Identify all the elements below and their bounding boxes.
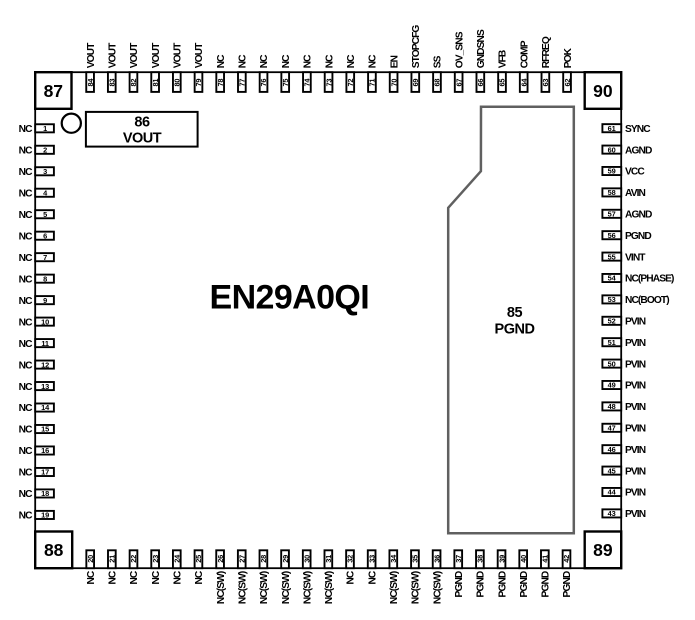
svg-text:19: 19: [41, 511, 49, 520]
svg-text:VOUT: VOUT: [86, 42, 97, 68]
svg-text:36: 36: [432, 555, 441, 563]
svg-text:9: 9: [43, 296, 47, 305]
svg-text:64: 64: [519, 78, 528, 87]
svg-text:80: 80: [173, 79, 182, 87]
svg-text:15: 15: [41, 425, 49, 434]
svg-text:6: 6: [43, 231, 47, 240]
svg-text:44: 44: [608, 488, 617, 497]
svg-text:43: 43: [608, 509, 616, 518]
svg-text:NC: NC: [19, 317, 33, 328]
svg-text:34: 34: [389, 554, 398, 563]
svg-text:GNDSNS: GNDSNS: [476, 29, 487, 68]
svg-text:AGND: AGND: [625, 145, 652, 156]
svg-text:16: 16: [41, 446, 49, 455]
svg-text:NC: NC: [346, 54, 357, 68]
svg-text:NC: NC: [19, 382, 33, 393]
svg-text:NC: NC: [19, 489, 33, 500]
svg-text:18: 18: [41, 489, 49, 498]
svg-text:29: 29: [281, 555, 290, 563]
svg-text:OV_SNS: OV_SNS: [454, 31, 465, 68]
svg-text:NC: NC: [259, 54, 270, 68]
svg-text:NC: NC: [19, 511, 33, 522]
svg-text:51: 51: [608, 338, 616, 347]
svg-text:63: 63: [541, 79, 550, 87]
svg-text:EN29A0QI: EN29A0QI: [210, 279, 370, 317]
svg-text:VOUT: VOUT: [151, 42, 162, 68]
svg-text:56: 56: [608, 231, 616, 240]
svg-text:73: 73: [324, 79, 333, 87]
svg-text:RFREQ: RFREQ: [541, 36, 552, 68]
svg-text:AGND: AGND: [625, 210, 652, 221]
svg-text:10: 10: [41, 317, 49, 326]
svg-text:28: 28: [259, 555, 268, 563]
svg-text:26: 26: [216, 555, 225, 563]
svg-text:PVIN: PVIN: [625, 317, 646, 328]
svg-text:79: 79: [194, 79, 203, 87]
svg-text:49: 49: [608, 381, 616, 390]
svg-text:AVIN: AVIN: [625, 188, 646, 199]
svg-text:46: 46: [608, 445, 616, 454]
svg-text:39: 39: [497, 555, 506, 563]
svg-text:81: 81: [151, 79, 160, 87]
svg-text:13: 13: [41, 382, 49, 391]
svg-text:45: 45: [608, 466, 616, 475]
svg-text:NC: NC: [86, 570, 97, 584]
svg-text:PGND: PGND: [454, 571, 465, 597]
svg-text:33: 33: [367, 555, 376, 563]
svg-text:NC: NC: [19, 425, 33, 436]
svg-text:32: 32: [346, 555, 355, 563]
svg-text:NC: NC: [346, 570, 357, 584]
svg-text:52: 52: [608, 317, 616, 326]
svg-text:NC: NC: [19, 231, 33, 242]
svg-text:22: 22: [129, 555, 138, 563]
svg-text:NC: NC: [19, 296, 33, 307]
svg-text:VOUT: VOUT: [107, 42, 118, 68]
svg-text:NC: NC: [19, 145, 33, 156]
svg-text:7: 7: [43, 253, 47, 262]
svg-text:37: 37: [454, 555, 463, 563]
svg-text:NC: NC: [324, 54, 335, 68]
svg-text:PGND: PGND: [495, 322, 535, 338]
svg-text:25: 25: [194, 555, 203, 563]
svg-text:74: 74: [303, 78, 312, 87]
svg-text:3: 3: [43, 167, 47, 176]
svg-text:23: 23: [151, 555, 160, 563]
svg-text:NC: NC: [19, 360, 33, 371]
svg-text:VOUT: VOUT: [173, 42, 184, 68]
svg-text:82: 82: [129, 79, 138, 87]
svg-text:24: 24: [173, 554, 182, 563]
svg-text:62: 62: [563, 79, 572, 87]
svg-text:35: 35: [411, 555, 420, 563]
svg-text:NC: NC: [238, 54, 249, 68]
svg-text:NC: NC: [19, 210, 33, 221]
svg-text:11: 11: [41, 339, 49, 348]
svg-text:NC: NC: [216, 54, 227, 68]
svg-text:12: 12: [41, 360, 49, 369]
svg-text:41: 41: [541, 555, 550, 563]
svg-text:NC: NC: [19, 446, 33, 457]
svg-text:NC: NC: [19, 253, 33, 264]
svg-text:NC: NC: [303, 54, 314, 68]
svg-text:EN: EN: [389, 55, 400, 68]
svg-text:NC(SW): NC(SW): [389, 571, 400, 604]
svg-text:STOPCFG: STOPCFG: [411, 25, 422, 69]
svg-text:PGND: PGND: [476, 571, 487, 597]
svg-text:76: 76: [259, 79, 268, 87]
svg-text:PVIN: PVIN: [625, 381, 646, 392]
svg-text:POK: POK: [563, 47, 574, 68]
svg-text:40: 40: [519, 555, 528, 563]
svg-text:86: 86: [134, 114, 150, 130]
svg-text:90: 90: [593, 81, 613, 101]
svg-text:PGND: PGND: [519, 571, 530, 597]
svg-text:PGND: PGND: [625, 231, 651, 242]
svg-text:NC(SW): NC(SW): [324, 571, 335, 604]
svg-text:57: 57: [608, 210, 616, 219]
svg-text:NC(SW): NC(SW): [237, 571, 248, 604]
svg-text:14: 14: [41, 403, 50, 412]
svg-text:88: 88: [44, 540, 64, 560]
svg-text:NC: NC: [194, 570, 205, 584]
svg-text:48: 48: [608, 402, 616, 411]
svg-text:53: 53: [608, 295, 616, 304]
svg-text:NC: NC: [19, 188, 33, 199]
svg-text:NC: NC: [281, 54, 292, 68]
svg-text:VOUT: VOUT: [123, 130, 162, 146]
svg-text:NC: NC: [19, 124, 33, 135]
svg-text:NC: NC: [19, 403, 33, 414]
svg-text:83: 83: [107, 79, 116, 87]
svg-text:NC(BOOT): NC(BOOT): [625, 295, 669, 306]
svg-text:NC: NC: [367, 570, 378, 584]
svg-text:68: 68: [433, 79, 442, 87]
svg-text:NC(PHASE): NC(PHASE): [625, 274, 674, 285]
svg-text:54: 54: [608, 274, 617, 283]
svg-text:61: 61: [608, 124, 616, 133]
svg-text:NC(SW): NC(SW): [259, 571, 270, 604]
svg-text:NC: NC: [173, 570, 184, 584]
svg-text:PVIN: PVIN: [625, 466, 646, 477]
svg-text:NC(SW): NC(SW): [216, 571, 227, 604]
svg-text:17: 17: [41, 468, 49, 477]
svg-text:1: 1: [43, 124, 47, 133]
svg-text:30: 30: [302, 555, 311, 563]
svg-text:PVIN: PVIN: [625, 338, 646, 349]
svg-text:27: 27: [237, 555, 246, 563]
svg-text:NC: NC: [19, 468, 33, 479]
svg-text:NC(SW): NC(SW): [281, 571, 292, 604]
svg-text:NC: NC: [368, 54, 379, 68]
svg-text:SS: SS: [433, 55, 444, 68]
svg-text:2: 2: [43, 145, 47, 154]
svg-text:PVIN: PVIN: [625, 509, 646, 520]
svg-text:50: 50: [608, 359, 616, 368]
svg-text:85: 85: [507, 305, 523, 321]
svg-text:SYNC: SYNC: [625, 124, 651, 135]
svg-text:75: 75: [281, 79, 290, 87]
svg-text:8: 8: [43, 274, 47, 283]
svg-text:65: 65: [498, 79, 507, 87]
svg-text:PVIN: PVIN: [625, 359, 646, 370]
svg-text:PGND: PGND: [562, 571, 573, 597]
svg-text:20: 20: [86, 555, 95, 563]
svg-text:NC: NC: [19, 339, 33, 350]
svg-text:PVIN: PVIN: [625, 488, 646, 499]
svg-text:PGND: PGND: [497, 571, 508, 597]
svg-text:31: 31: [324, 555, 333, 563]
svg-text:21: 21: [108, 555, 117, 563]
svg-text:VOUT: VOUT: [194, 42, 205, 68]
svg-text:69: 69: [411, 79, 420, 87]
svg-text:PGND: PGND: [541, 571, 552, 597]
svg-text:COMP: COMP: [519, 40, 530, 68]
svg-text:71: 71: [368, 79, 377, 87]
svg-text:42: 42: [562, 555, 571, 563]
svg-text:NC: NC: [151, 570, 162, 584]
svg-text:PVIN: PVIN: [625, 445, 646, 456]
svg-text:VOUT: VOUT: [129, 42, 140, 68]
svg-text:VFB: VFB: [498, 50, 509, 68]
svg-text:55: 55: [608, 252, 616, 261]
svg-text:84: 84: [86, 78, 95, 87]
svg-text:VCC: VCC: [625, 167, 645, 178]
svg-text:72: 72: [346, 79, 355, 87]
svg-text:NC: NC: [19, 167, 33, 178]
svg-text:70: 70: [389, 79, 398, 87]
svg-text:VINT: VINT: [625, 252, 646, 263]
svg-text:87: 87: [44, 81, 63, 101]
svg-text:77: 77: [238, 79, 247, 87]
svg-text:38: 38: [476, 555, 485, 563]
svg-text:NC: NC: [19, 274, 33, 285]
svg-text:NC: NC: [129, 570, 140, 584]
svg-text:78: 78: [216, 79, 225, 87]
svg-text:NC(SW): NC(SW): [411, 571, 422, 604]
svg-text:47: 47: [608, 424, 616, 433]
svg-text:5: 5: [43, 210, 47, 219]
svg-text:PVIN: PVIN: [625, 424, 646, 435]
svg-text:PVIN: PVIN: [625, 402, 646, 413]
svg-text:NC(SW): NC(SW): [302, 571, 313, 604]
svg-text:67: 67: [454, 79, 463, 87]
svg-text:NC(SW): NC(SW): [432, 571, 443, 604]
svg-text:89: 89: [593, 540, 613, 560]
svg-text:66: 66: [476, 79, 485, 87]
svg-text:NC: NC: [108, 570, 119, 584]
svg-text:58: 58: [608, 188, 616, 197]
svg-text:60: 60: [608, 145, 616, 154]
svg-text:59: 59: [608, 167, 616, 176]
